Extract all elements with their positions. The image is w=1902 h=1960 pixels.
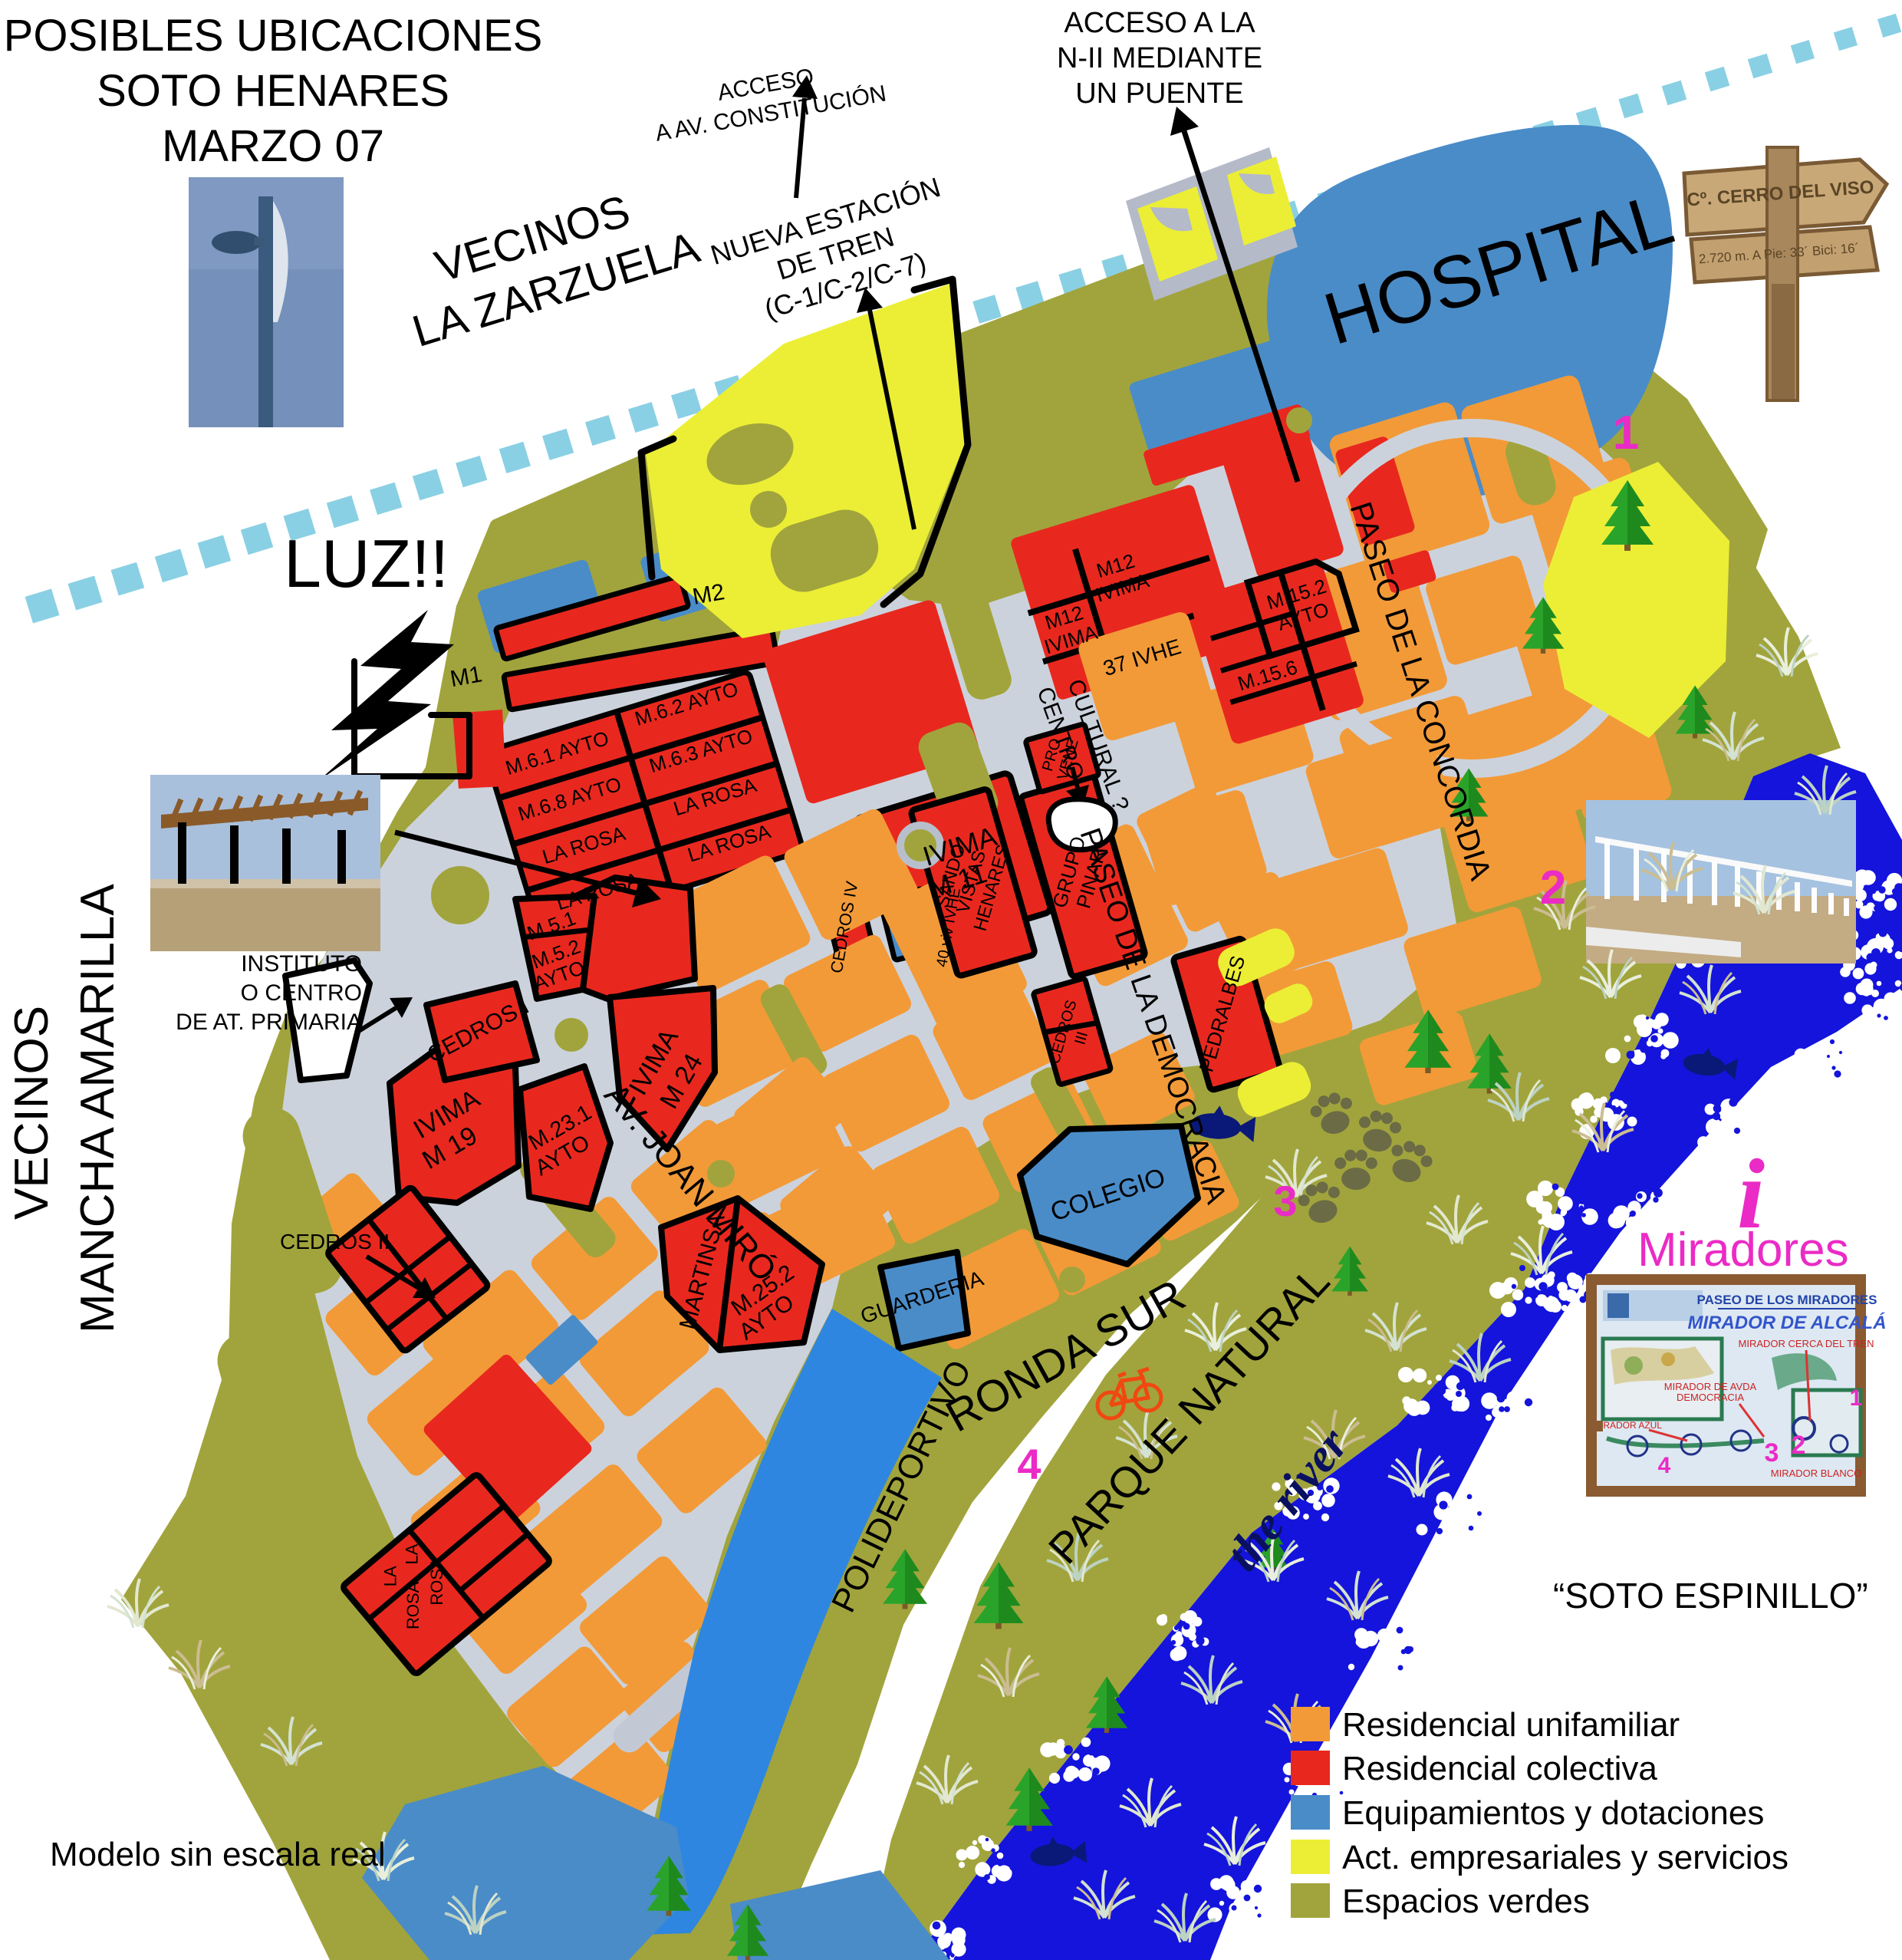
svg-text:4: 4	[1017, 1440, 1041, 1488]
svg-text:2: 2	[1792, 1431, 1806, 1460]
svg-text:LA: LA	[380, 1566, 400, 1586]
svg-text:DE AT. PRIMARIA: DE AT. PRIMARIA	[176, 1010, 362, 1035]
svg-text:UN PUENTE: UN PUENTE	[1075, 77, 1244, 110]
svg-text:N-II MEDIANTE: N-II MEDIANTE	[1057, 42, 1262, 74]
svg-text:ROSA: ROSA	[427, 1557, 446, 1606]
svg-text:ACCESO A LA: ACCESO A LA	[1064, 7, 1255, 39]
svg-text:1: 1	[1613, 407, 1639, 460]
svg-text:MIRADOR DE ALCALÁ: MIRADOR DE ALCALÁ	[1687, 1312, 1886, 1333]
svg-text:MIRADOR AZUL: MIRADOR AZUL	[1593, 1420, 1662, 1431]
svg-text:1: 1	[1850, 1385, 1863, 1411]
svg-text:DEMOCRACIA: DEMOCRACIA	[1677, 1392, 1744, 1403]
svg-text:“SOTO ESPINILLO”: “SOTO ESPINILLO”	[1553, 1576, 1868, 1616]
svg-text:4: 4	[1658, 1453, 1671, 1478]
svg-text:Modelo sin escala real: Modelo sin escala real	[50, 1836, 386, 1873]
svg-text:LUZ!!: LUZ!!	[284, 525, 449, 601]
svg-text:Residencial colectiva: Residencial colectiva	[1342, 1750, 1657, 1787]
svg-text:CEDROS II: CEDROS II	[280, 1230, 390, 1253]
svg-text:ROSA: ROSA	[403, 1581, 423, 1629]
svg-text:Equipamientos y dotaciones: Equipamientos y dotaciones	[1342, 1794, 1764, 1832]
svg-text:MARZO 07: MARZO 07	[162, 121, 384, 171]
svg-text:LA: LA	[403, 1543, 422, 1564]
svg-text:MANCHA AMARILLA: MANCHA AMARILLA	[71, 884, 124, 1333]
svg-text:MIRADOR BLANCO: MIRADOR BLANCO	[1771, 1468, 1861, 1479]
svg-text:INSTITUTO: INSTITUTO	[241, 951, 362, 977]
svg-text:Residencial unifamiliar: Residencial unifamiliar	[1342, 1706, 1680, 1744]
svg-text:POSIBLES UBICACIONES: POSIBLES UBICACIONES	[4, 11, 543, 61]
svg-text:Act. empresariales y servicios: Act. empresariales y servicios	[1342, 1839, 1788, 1876]
svg-text:Espacios verdes: Espacios verdes	[1342, 1883, 1590, 1920]
svg-text:3: 3	[1765, 1438, 1779, 1468]
svg-text:MIRADOR DE AVDA: MIRADOR DE AVDA	[1664, 1381, 1757, 1392]
svg-text:2: 2	[1540, 861, 1566, 914]
svg-text:O CENTRO: O CENTRO	[241, 980, 362, 1006]
svg-text:PASEO DE LOS MIRADORES: PASEO DE LOS MIRADORES	[1697, 1293, 1877, 1307]
svg-text:3: 3	[1273, 1177, 1297, 1225]
svg-text:SOTO HENARES: SOTO HENARES	[97, 66, 449, 116]
svg-text:VECINOS: VECINOS	[5, 1006, 58, 1220]
svg-text:MIRADOR CERCA DEL TREN: MIRADOR CERCA DEL TREN	[1739, 1338, 1874, 1349]
svg-text:Miradores: Miradores	[1637, 1224, 1849, 1276]
